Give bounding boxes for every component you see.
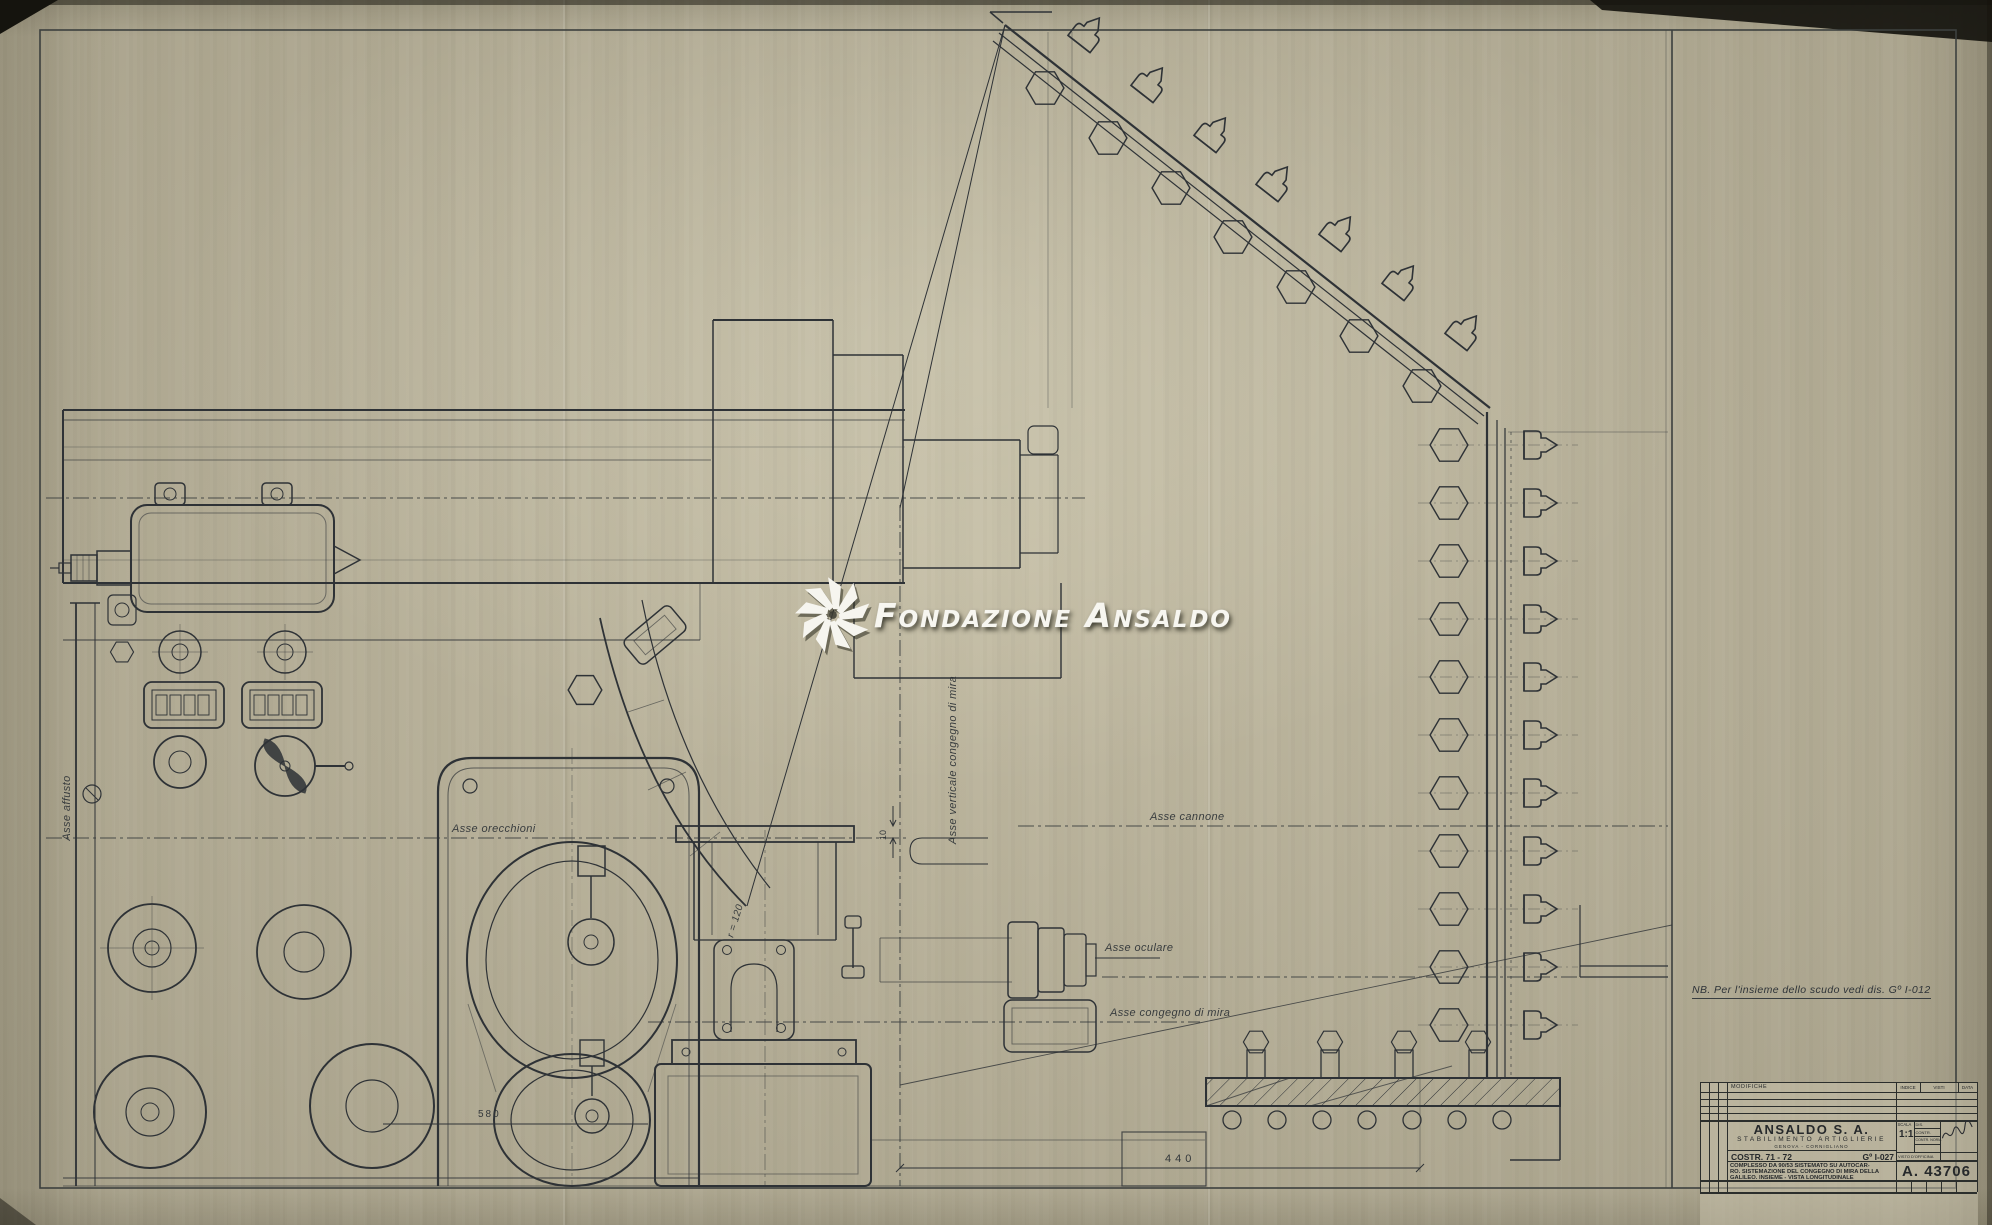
tb-header-indice: INDICE	[1896, 1085, 1920, 1090]
tb-codice: Gº I-027	[1840, 1152, 1894, 1162]
tb-field-contr-norm: CONTR. NORM.	[1916, 1138, 1943, 1142]
axis-labels: Asse affusto Asse orecchioni Asse vertic…	[61, 676, 1230, 1019]
dim-r120: r = 120	[725, 903, 746, 939]
label-asse-congegno-di-mira: Asse congegno di mira	[1109, 1007, 1230, 1019]
sight-assembly	[655, 826, 1206, 1186]
tb-drawing-number: A. 43706	[1896, 1163, 1977, 1180]
tb-description-3: GALILEO. INSIEME - VISTA LONGITUDINALE	[1730, 1175, 1854, 1181]
tb-field-contr: CONTR.	[1916, 1130, 1931, 1135]
label-asse-orecchioni: Asse orecchioni	[451, 823, 536, 835]
fondazione-ansaldo-watermark: Fondazione Ansaldo	[792, 572, 1232, 658]
approval-signature-icon	[1940, 1120, 1976, 1148]
dim-440: 440	[1165, 1153, 1195, 1165]
tb-header-data: DATA	[1958, 1085, 1977, 1090]
ansaldo-pinwheel-logo-icon	[792, 572, 874, 658]
label-asse-oculare: Asse oculare	[1104, 942, 1173, 954]
elevation-arc	[568, 600, 770, 906]
watermark-text: Fondazione Ansaldo	[874, 596, 1232, 635]
armour-shield	[747, 12, 1672, 1085]
scanned-technical-drawing: 440 580 10 r = 120 Asse affusto Asse ore…	[0, 0, 1992, 1225]
label-asse-verticale-congegno: Asse verticale congegno di mira	[947, 676, 959, 845]
tb-location: GENOVA - CORNIGLIANO	[1727, 1144, 1896, 1149]
nb-note-text: NB. Per l'insieme dello scudo vedi dis. …	[1692, 984, 1931, 999]
tb-header-visti: VISTI	[1920, 1085, 1958, 1090]
title-block: MODIFICHE INDICE VISTI DATA ANSALDO S. A…	[1700, 1082, 1978, 1225]
dim-580: 580	[478, 1109, 501, 1120]
dim-10: 10	[878, 830, 888, 840]
tb-costr: COSTR. 71 - 72	[1731, 1152, 1792, 1162]
shield-base-plate	[1206, 1031, 1560, 1160]
tb-scala-label: SCALA	[1898, 1122, 1912, 1127]
tb-scala-value: 1:1	[1899, 1129, 1913, 1140]
tb-field-dis: DIS.	[1916, 1122, 1924, 1127]
tb-company: ANSALDO S. A.	[1727, 1122, 1896, 1137]
label-asse-affusto: Asse affusto	[61, 775, 73, 841]
tb-header-modifiche: MODIFICHE	[1731, 1084, 1767, 1090]
shield-bolts-diagonal	[1026, 9, 1487, 402]
tb-division: STABILIMENTO ARTIGLIERIE	[1727, 1136, 1896, 1143]
nb-note: NB. Per l'insieme dello scudo vedi dis. …	[1692, 984, 1924, 996]
tb-field-visto-officina: VISTO D'OFFICINA	[1898, 1154, 1933, 1159]
label-asse-cannone: Asse cannone	[1149, 811, 1225, 823]
bolt-centerlines	[1418, 445, 1578, 1025]
